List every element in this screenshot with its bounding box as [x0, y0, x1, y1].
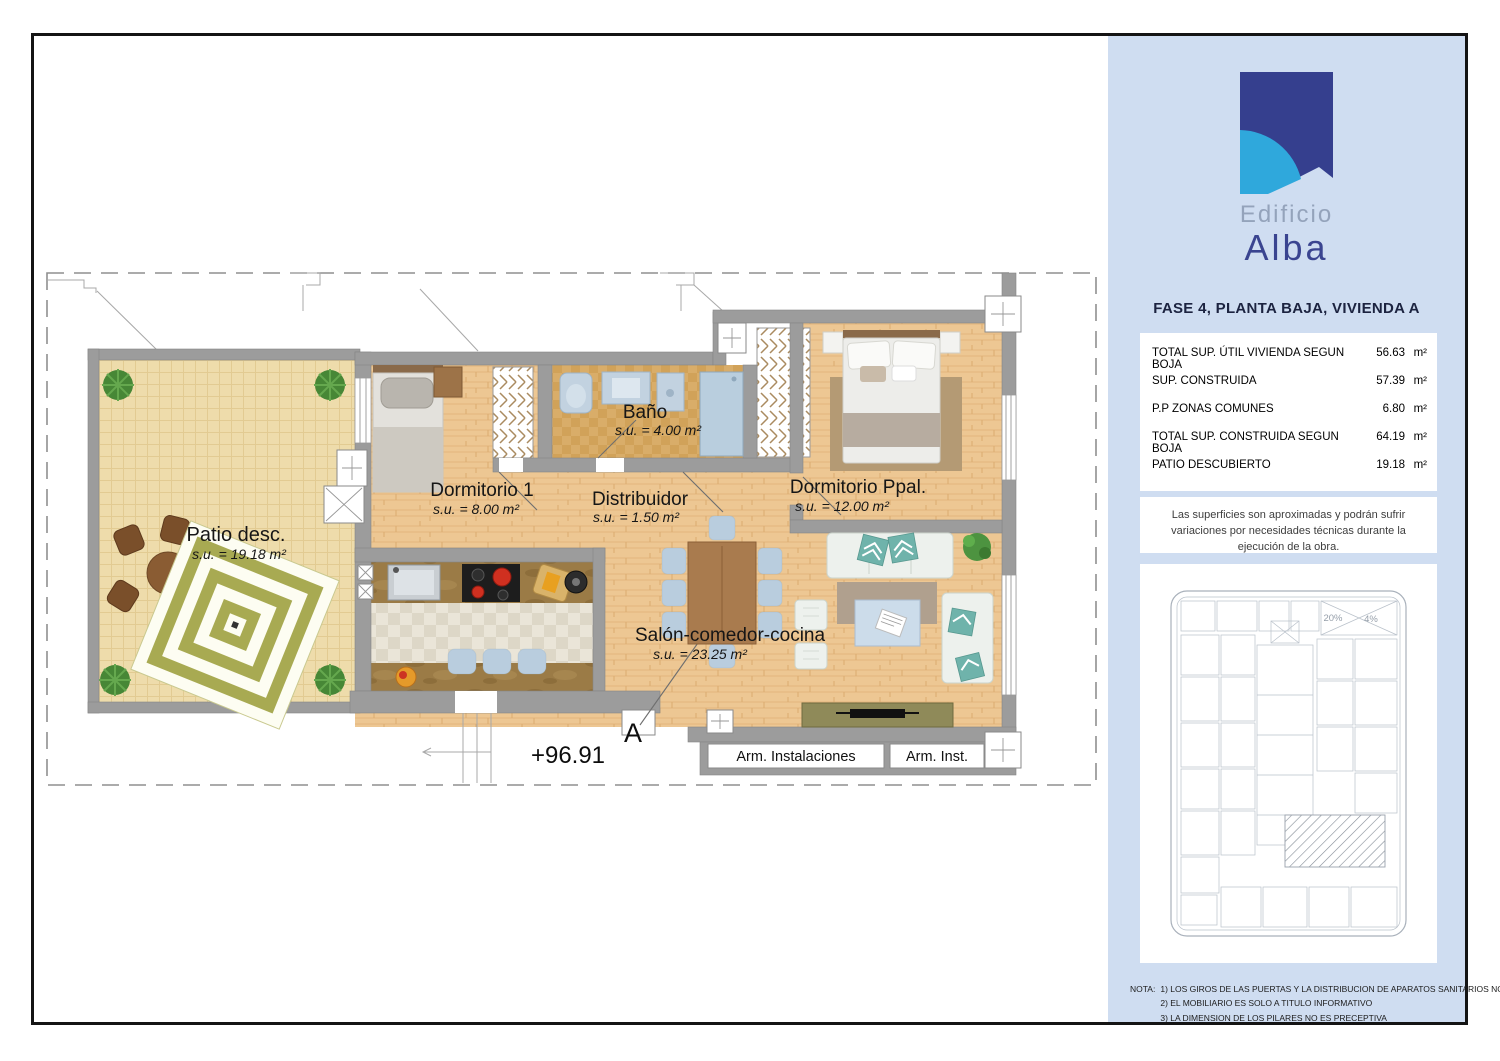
chair-icon [758, 580, 782, 606]
plan-sheet: Arm. Instalaciones Arm. Inst. Patio desc… [0, 0, 1500, 1061]
room-label-patio: Patio desc. [187, 524, 286, 546]
key-plan-box: 20% 4% [1140, 564, 1437, 963]
pillow-icon [888, 533, 918, 563]
sidebar: Edificio Alba FASE 4, PLANTA BAJA, VIVIE… [1108, 36, 1465, 1022]
window-icon [355, 378, 371, 443]
slope-label-4: 4% [1364, 614, 1378, 625]
note-item: 1) LOS GIROS DE LAS PUERTAS Y LA DISTRIB… [1160, 982, 1500, 996]
shower-icon [700, 372, 743, 456]
pillar-icon [358, 565, 373, 580]
room-area-salon: s.u. = 23.25 m² [653, 646, 748, 662]
sheet-frame: Arm. Instalaciones Arm. Inst. Patio desc… [31, 33, 1468, 1025]
pouf-icon [795, 643, 827, 669]
notes-block: NOTA: 1) LOS GIROS DE LAS PUERTAS Y LA D… [1130, 982, 1460, 1025]
closet-label: Arm. Inst. [906, 749, 968, 765]
notes-label: NOTA: [1130, 982, 1155, 1025]
chair-icon [662, 580, 686, 606]
room-area-dormitorio1: s.u. = 8.00 m² [433, 501, 520, 517]
chair-icon [758, 548, 782, 574]
disclaimer-note: Las superficies son aproximadas y podrán… [1140, 497, 1437, 553]
pillow-icon [955, 652, 984, 681]
plant-icon [963, 533, 991, 561]
surface-unit: m² [1405, 347, 1427, 359]
stool-icon [518, 649, 546, 674]
kitchen-floor [368, 603, 593, 663]
surface-label: TOTAL SUP. ÚTIL VIVIENDA SEGUN BOJA [1150, 347, 1361, 371]
surface-row: TOTAL SUP. ÚTIL VIVIENDA SEGUN BOJA 56.6… [1150, 347, 1427, 375]
surface-value: 56.63 [1361, 347, 1405, 359]
surface-row: PATIO DESCUBIERTO 19.18 m² [1150, 459, 1427, 487]
room-label-dormitorio1: Dormitorio 1 [430, 480, 533, 501]
nightstand-icon [823, 332, 843, 353]
double-bed-icon [823, 330, 962, 471]
room-area-patio: s.u. = 19.18 m² [192, 546, 287, 562]
sofa-icon [827, 533, 953, 578]
window-icon [1002, 575, 1016, 695]
room-label-dormitorio-ppal: Dormitorio Ppal. [790, 477, 926, 498]
section-mark: A [624, 718, 642, 748]
surface-unit: m² [1405, 431, 1427, 443]
tv-cabinet-icon [802, 703, 953, 727]
room-area-dormitorio-ppal: s.u. = 12.00 m² [795, 498, 890, 514]
sofa-icon [942, 593, 993, 683]
wardrobe-icon [493, 367, 533, 458]
slope-label-20: 20% [1323, 613, 1343, 624]
surface-unit: m² [1405, 375, 1427, 387]
stove-icon [462, 564, 520, 602]
note-item: 2) EL MOBILIARIO ES SOLO A TITULO INFORM… [1160, 996, 1500, 1010]
window-icon [1002, 395, 1016, 480]
stool-icon [483, 649, 511, 674]
surface-unit: m² [1405, 403, 1427, 415]
surface-row: TOTAL SUP. CONSTRUIDA SEGUN BOJA 64.19 m… [1150, 431, 1427, 459]
nightstand-icon [940, 332, 960, 353]
sink-icon [602, 372, 650, 404]
floor-plan-drawing: Arm. Instalaciones Arm. Inst. Patio desc… [40, 265, 1100, 800]
fruit-bowl-icon [396, 667, 416, 687]
surface-value: 64.19 [1361, 431, 1405, 443]
surface-unit: m² [1405, 459, 1427, 471]
pillar-icon [358, 584, 373, 599]
chair-icon [709, 516, 735, 540]
surface-value: 57.39 [1361, 375, 1405, 387]
room-label-salon: Salón-comedor-cocina [635, 625, 826, 646]
surface-label: P.P ZONAS COMUNES [1150, 403, 1361, 415]
room-label-distribuidor: Distribuidor [592, 489, 689, 510]
pillar-icon [985, 296, 1021, 332]
pillar-icon [324, 486, 364, 523]
chair-icon [662, 548, 686, 574]
surface-table: TOTAL SUP. ÚTIL VIVIENDA SEGUN BOJA 56.6… [1140, 333, 1437, 491]
logo [1108, 72, 1465, 200]
highlighted-unit [1285, 815, 1385, 867]
surface-row: P.P ZONAS COMUNES 6.80 m² [1150, 403, 1427, 431]
pillar-icon [337, 450, 367, 486]
pillow-icon [857, 534, 889, 566]
pillar-icon [718, 323, 746, 353]
note-item: 3) LA DIMENSION DE LOS PILARES NO ES PRE… [1160, 1011, 1500, 1025]
room-area-bano: s.u. = 4.00 m² [615, 422, 702, 438]
room-label-bano: Baño [623, 402, 667, 423]
key-plan-drawing: 20% 4% [1165, 585, 1412, 942]
logo-text-edificio: Edificio [1108, 201, 1465, 229]
surface-label: SUP. CONSTRUIDA [1150, 375, 1361, 387]
coffee-maker-icon [565, 571, 587, 593]
surface-value: 19.18 [1361, 459, 1405, 471]
coffee-table-icon [855, 600, 920, 646]
room-area-distribuidor: s.u. = 1.50 m² [593, 509, 680, 525]
pillar-icon [985, 732, 1021, 768]
pillar-icon [707, 710, 733, 733]
floor-plan-area: Arm. Instalaciones Arm. Inst. Patio desc… [40, 265, 1100, 800]
sheet-title: FASE 4, PLANTA BAJA, VIVIENDA A [1108, 300, 1465, 317]
logo-text-alba: Alba [1108, 227, 1465, 269]
key-plan-detail [1171, 591, 1406, 936]
surface-row: SUP. CONSTRUIDA 57.39 m² [1150, 375, 1427, 403]
edificio-alba-logo-icon [1240, 72, 1333, 195]
kitchen-sink-icon [388, 565, 440, 600]
surface-label: PATIO DESCUBIERTO [1150, 459, 1361, 471]
nightstand-icon [434, 367, 462, 397]
closet-labels: Arm. Instalaciones Arm. Inst. [708, 744, 984, 768]
stool-icon [448, 649, 476, 674]
surface-label: TOTAL SUP. CONSTRUIDA SEGUN BOJA [1150, 431, 1361, 455]
toilet-icon [560, 373, 592, 413]
surface-value: 6.80 [1361, 403, 1405, 415]
pillow-icon [948, 608, 976, 636]
level-mark: +96.91 [531, 742, 605, 769]
closet-label: Arm. Instalaciones [736, 749, 855, 765]
